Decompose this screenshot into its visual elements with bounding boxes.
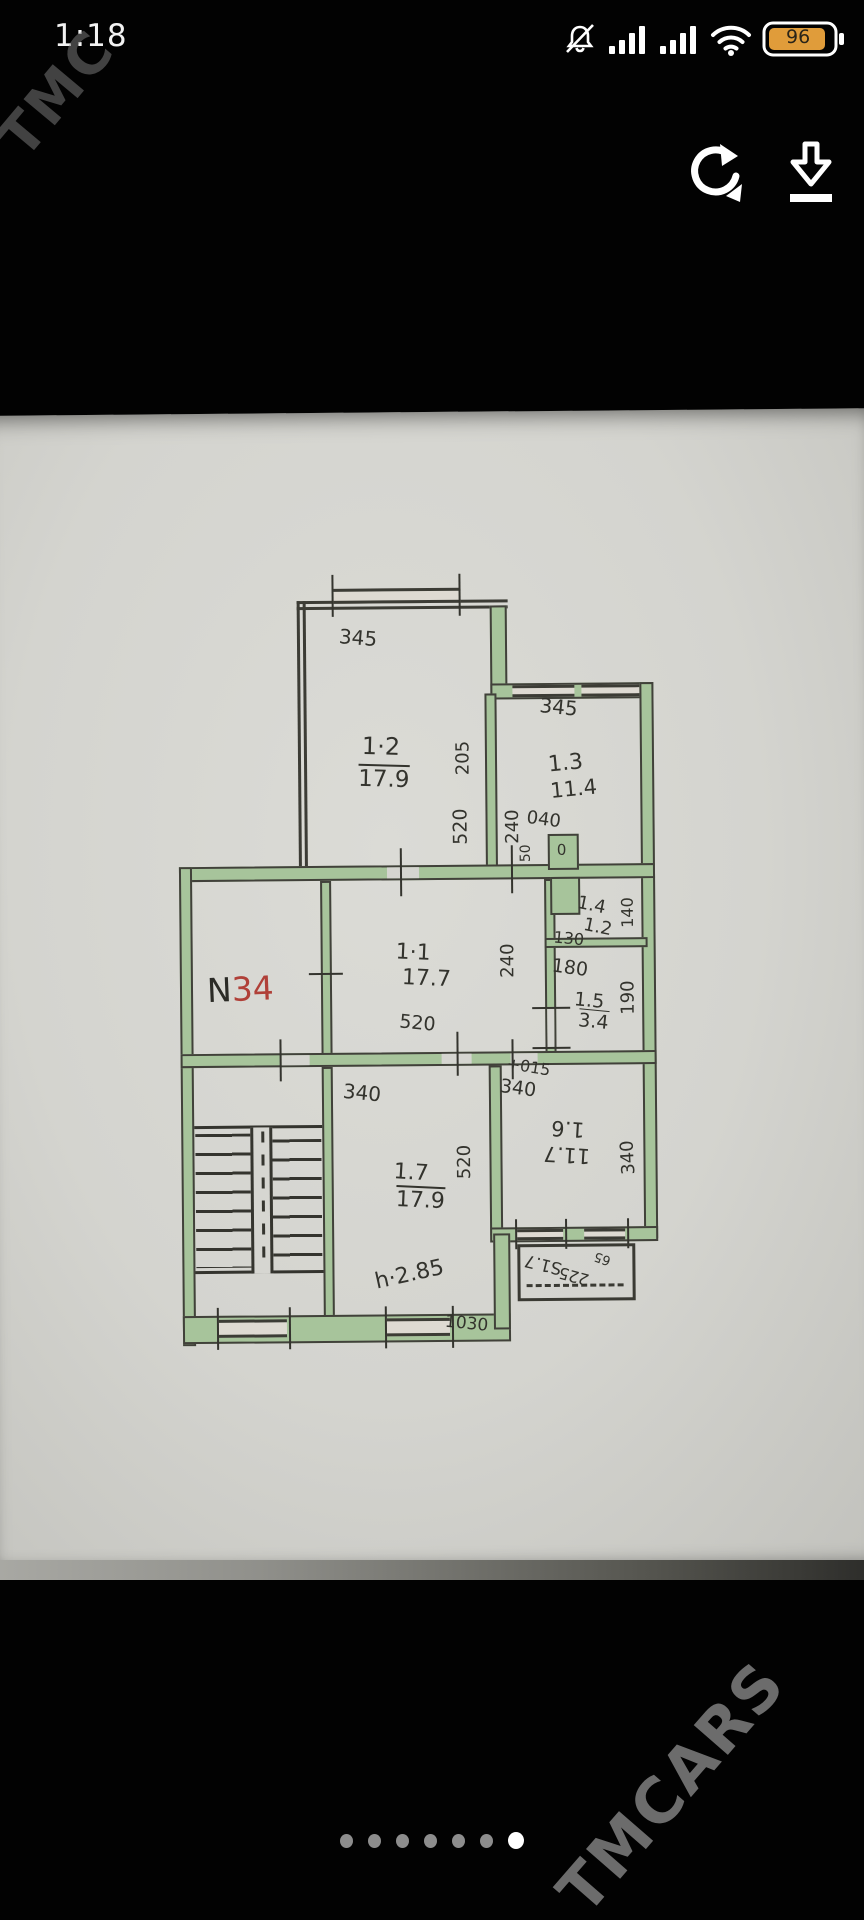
- stair-flight: [195, 1134, 252, 1268]
- room-id: 1.6: [551, 1116, 586, 1142]
- door-opening: [387, 867, 419, 878]
- dim-tick: [385, 1306, 387, 1348]
- window: [219, 1319, 287, 1338]
- battery-icon: 96: [762, 20, 846, 62]
- pagination-dot-3[interactable]: [424, 1834, 437, 1848]
- dim-label: 345: [338, 624, 378, 651]
- wall: [639, 682, 658, 1238]
- pagination-dot-6[interactable]: [508, 1832, 524, 1849]
- dim-label: 1030: [444, 1312, 489, 1336]
- dim-label: 040: [525, 807, 562, 832]
- wall: [493, 1233, 511, 1329]
- dim-tick: [217, 1308, 219, 1350]
- window: [584, 1228, 625, 1239]
- dim-label: 520: [449, 797, 471, 845]
- dim-tick: [400, 848, 402, 896]
- stair-divider: [250, 1127, 273, 1273]
- stair-center-dashed: [261, 1131, 265, 1269]
- wall: [322, 1067, 335, 1325]
- dim-label: 140: [618, 884, 637, 928]
- dim-label: 130: [553, 927, 585, 949]
- room-area: 3.4: [577, 1009, 609, 1034]
- mute-icon: [562, 21, 598, 61]
- pagination-dot-0[interactable]: [340, 1834, 353, 1848]
- room-id: 1.3: [547, 749, 584, 777]
- watermark-bottom-right: TMCARS: [543, 1647, 800, 1920]
- height-note: h·2.85: [373, 1255, 447, 1295]
- dim-label: 0: [557, 841, 567, 859]
- wall: [484, 693, 498, 871]
- floor-plan-photo[interactable]: 345 1·2 17.9 205 520 240 345 1.3 11.4 04…: [0, 408, 864, 1568]
- dim-label: 50: [518, 832, 534, 862]
- room-area: 11.4: [549, 775, 598, 803]
- wall: [297, 601, 308, 877]
- unit-num: 34: [231, 968, 275, 1009]
- pagination-dot-1[interactable]: [368, 1834, 381, 1848]
- window: [334, 588, 461, 604]
- paper-edge-shadow: [0, 1560, 864, 1580]
- pagination-dot-5[interactable]: [480, 1834, 493, 1848]
- dim-label: 340: [615, 1122, 639, 1175]
- window: [581, 684, 639, 697]
- dim-tick: [309, 973, 343, 975]
- room-id: 1·2: [362, 732, 401, 761]
- room-id: 1.7: [393, 1159, 429, 1186]
- pagination-dot-4[interactable]: [452, 1834, 465, 1848]
- wifi-icon: [709, 21, 753, 61]
- dim-tick: [279, 1039, 281, 1081]
- room-area: 17.7: [401, 965, 451, 992]
- pagination-dots[interactable]: [0, 1832, 864, 1849]
- door-opening: [547, 1009, 554, 1047]
- battery-percent: 96: [786, 26, 810, 48]
- photo-viewer-screen: 1:18: [0, 0, 864, 1920]
- dim-label: 340: [499, 1075, 538, 1102]
- unit-prefix: N: [206, 970, 232, 1010]
- room-area: 1.2: [582, 914, 614, 940]
- room-area: 17.9: [358, 766, 410, 793]
- wall: [490, 605, 508, 693]
- dim-tick: [511, 845, 513, 893]
- dim-tick: [456, 1032, 458, 1076]
- cellular-signal-icon-2: [658, 21, 700, 61]
- door-jamb-tick: [532, 1007, 570, 1009]
- dim-tick: [331, 575, 333, 617]
- cellular-signal-icon: [607, 21, 649, 61]
- wall: [320, 881, 333, 1059]
- stair-flight: [272, 1139, 322, 1267]
- image-toolbar: [682, 138, 842, 214]
- dim-label: 190: [617, 963, 638, 1015]
- dim-label: 205: [452, 729, 473, 775]
- room-area: 11.7: [543, 1141, 591, 1168]
- window: [387, 1318, 450, 1337]
- download-button[interactable]: [780, 138, 842, 214]
- window: [517, 1229, 563, 1240]
- rotate-button[interactable]: [682, 138, 746, 214]
- room-area: 17.9: [395, 1187, 445, 1214]
- status-icons: 96: [562, 20, 846, 62]
- dim-label: 520: [454, 1129, 475, 1179]
- dim-tick: [458, 574, 460, 616]
- dim-label: 240: [497, 926, 518, 978]
- dim-label: 520: [398, 1010, 436, 1035]
- dim-tick: [289, 1307, 291, 1349]
- dim-label: 340: [342, 1079, 382, 1107]
- door-opening: [282, 1055, 310, 1065]
- pagination-dot-2[interactable]: [396, 1834, 409, 1848]
- dim-label: 345: [538, 693, 578, 721]
- unit-number: N34: [206, 968, 274, 1010]
- dim-label: 180: [551, 955, 590, 982]
- door-jamb-tick: [533, 1047, 571, 1049]
- wall: [179, 867, 196, 1346]
- room-id: 1·1: [395, 939, 431, 966]
- wall: [181, 1050, 657, 1068]
